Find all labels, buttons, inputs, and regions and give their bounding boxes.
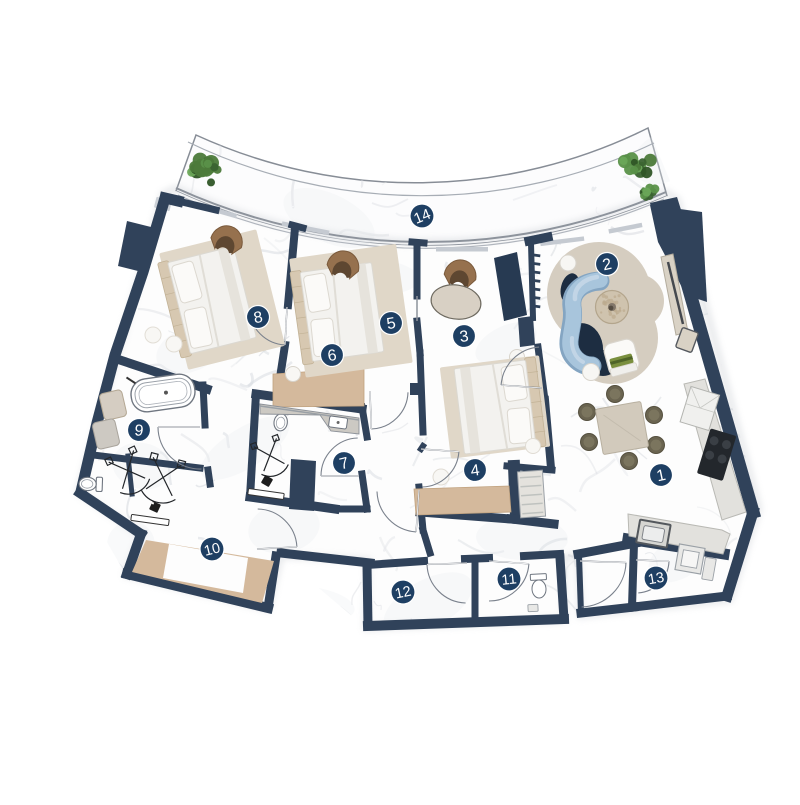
svg-text:9: 9 bbox=[134, 422, 145, 440]
svg-text:13: 13 bbox=[647, 570, 666, 589]
svg-text:12: 12 bbox=[394, 584, 413, 603]
svg-text:11: 11 bbox=[501, 571, 518, 588]
